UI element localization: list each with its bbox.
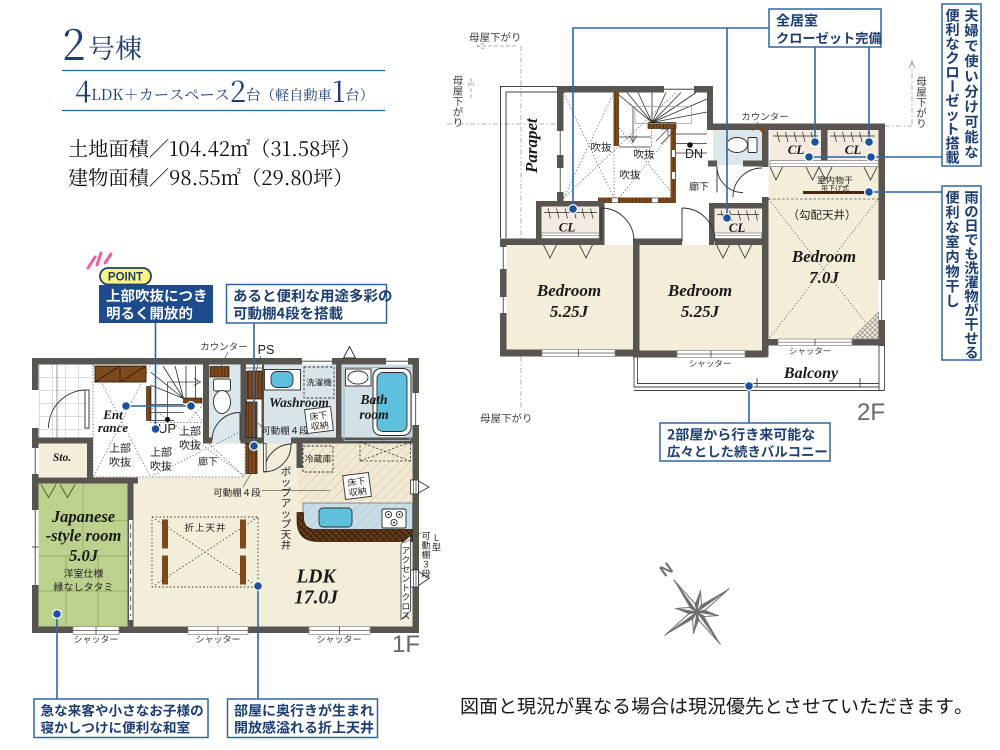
svg-text:-style room: -style room — [46, 526, 122, 545]
svg-text:LDK: LDK — [296, 567, 338, 588]
svg-text:room: room — [359, 407, 388, 422]
svg-text:CL: CL — [788, 142, 805, 157]
svg-text:17.0J: 17.0J — [294, 588, 339, 609]
svg-text:Washroom: Washroom — [269, 395, 329, 410]
svg-text:Bedroom: Bedroom — [536, 281, 601, 300]
svg-text:Bedroom: Bedroom — [667, 281, 732, 300]
svg-text:Bath: Bath — [359, 392, 387, 407]
svg-text:7.0J: 7.0J — [809, 268, 839, 287]
svg-text:Bedroom: Bedroom — [791, 247, 856, 266]
svg-text:UP: UP — [158, 421, 176, 436]
svg-text:CL: CL — [845, 142, 862, 157]
svg-text:DN: DN — [685, 147, 703, 161]
svg-text:5.0J: 5.0J — [69, 546, 99, 565]
svg-text:2F: 2F — [857, 399, 885, 426]
svg-text:Sto.: Sto. — [53, 452, 71, 464]
svg-text:rance: rance — [98, 420, 129, 435]
svg-text:1F: 1F — [392, 631, 420, 658]
svg-text:Japanese: Japanese — [51, 507, 115, 526]
svg-text:N: N — [657, 560, 676, 581]
svg-text:5.25J: 5.25J — [550, 302, 589, 321]
svg-text:PS: PS — [258, 343, 275, 357]
svg-text:Balcony: Balcony — [783, 365, 839, 382]
svg-text:POINT: POINT — [108, 272, 143, 284]
svg-text:CL: CL — [559, 220, 576, 235]
svg-text:5.25J: 5.25J — [681, 302, 720, 321]
svg-text:Parapet: Parapet — [522, 117, 541, 174]
